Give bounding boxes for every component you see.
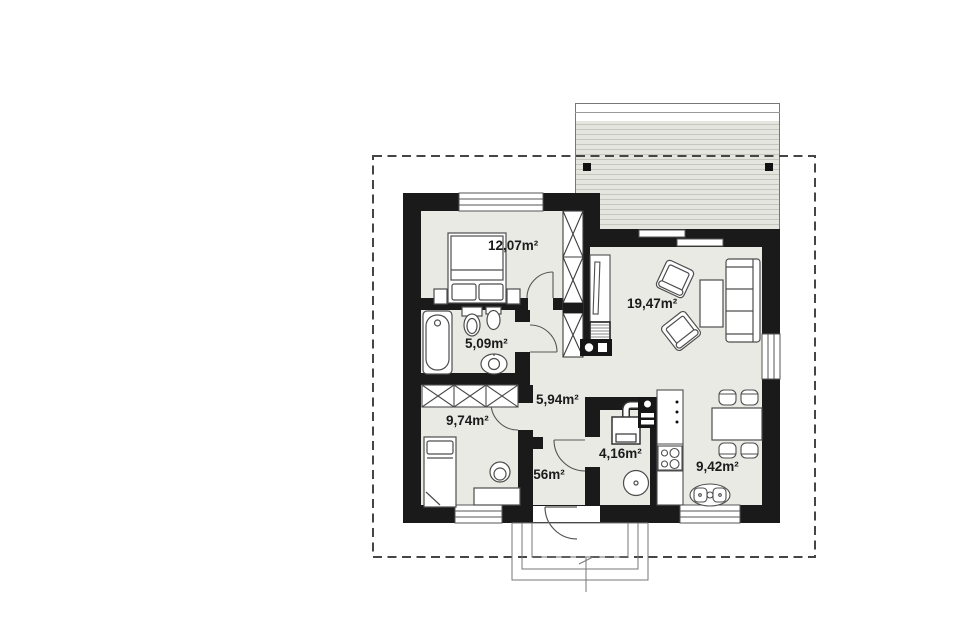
terrace-sliding-door (639, 230, 723, 246)
water-heater-icon (624, 471, 649, 496)
entrance-porch-steps (512, 523, 648, 592)
washbasin-icon (481, 354, 507, 374)
room-label-boiler-room: 4,16m² (599, 446, 642, 461)
window-bedroom-1-top (459, 193, 543, 211)
entrance-opening (533, 506, 600, 522)
single-bed-icon (424, 437, 456, 507)
nightstand-right-icon (507, 289, 520, 304)
room-label-entry-hall: 2,56m² (522, 467, 565, 482)
bathtub-icon (423, 311, 452, 374)
room-label-bathroom: 5,09m² (465, 336, 508, 351)
fireplace-icon (580, 339, 612, 356)
toilet-icon (462, 307, 482, 336)
room-label-kitchen-dining: 9,42m² (696, 459, 739, 474)
furnace-icon (612, 405, 642, 444)
tv-cabinet-icon (590, 255, 610, 322)
kitchen-sink-icon (690, 484, 730, 506)
room-label-living-room: 19,47m² (627, 296, 677, 311)
armchair-2-icon (660, 310, 702, 352)
room-label-bedroom-1: 12,07m² (488, 238, 538, 253)
desk-chair-icon (490, 462, 510, 482)
sofa-icon (726, 259, 760, 342)
desk-icon (474, 488, 520, 505)
stove-icon (658, 446, 682, 470)
wardrobe-column-icon (563, 211, 583, 357)
chimney-vent-icon (638, 397, 657, 428)
floor-plan-canvas: 12,07m² 19,47m² 5,09m² 9,74m² 5,94m² 2,5… (0, 0, 960, 630)
nightstand-left-icon (434, 289, 447, 304)
coffee-table-icon (700, 280, 723, 327)
window-bedroom-2-bottom (455, 505, 502, 523)
bidet-icon (486, 307, 501, 330)
door-bathroom (530, 325, 557, 352)
closet-bedroom-2-icon (422, 385, 518, 407)
dining-table-icon (712, 408, 762, 440)
window-living-right (762, 334, 780, 379)
armchair-1-icon (655, 259, 695, 299)
window-kitchen-bottom (680, 505, 740, 523)
room-label-bedroom-2: 9,74m² (446, 413, 489, 428)
room-label-hallway: 5,94m² (536, 392, 579, 407)
door-bedroom-1 (527, 272, 553, 298)
